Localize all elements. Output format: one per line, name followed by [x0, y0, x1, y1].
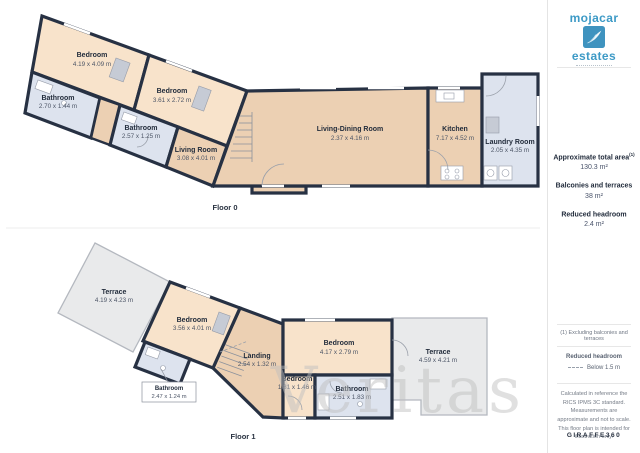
room-label: Bathroom — [41, 95, 74, 102]
divider — [557, 383, 631, 384]
room-dims: 4.19 x 4.09 m — [73, 61, 111, 68]
divider — [557, 67, 631, 68]
room-label: Bathroom — [124, 125, 157, 132]
divider — [557, 324, 631, 325]
area-footnote: (1) Excluding balconies and terraces — [552, 330, 636, 342]
room-label: Bedroom — [157, 88, 188, 95]
area-stats: Approximate total area(1) 130.3 m² Balco… — [548, 152, 640, 237]
room-label: Bedroom — [324, 340, 355, 347]
room-label: Kitchen — [442, 126, 468, 133]
room-label: Terrace — [102, 289, 127, 296]
room-dims: 2.05 x 4.35 m — [491, 147, 529, 154]
dashed-line-sample — [568, 367, 583, 368]
stat-total-area: Approximate total area(1) 130.3 m² — [548, 152, 640, 171]
room-label: Landing — [243, 353, 270, 360]
giraffe360-logo: GIRAFFE360 — [548, 432, 640, 439]
room-label: Living-Dining Room — [317, 126, 384, 133]
room-dims: 3.08 x 4.01 m — [177, 155, 215, 162]
stat-value: 2.4 m² — [548, 221, 640, 228]
floor-1-label: Floor 1 — [230, 432, 255, 441]
divider — [557, 346, 631, 347]
room-label: Living Room — [175, 147, 217, 154]
room-label: Laundry Room — [485, 139, 534, 146]
room-dims: 3.61 x 2.72 m — [153, 97, 191, 104]
floor-0-plan: Bedroom 4.19 x 4.09 m Bathroom 2.70 x 1.… — [25, 16, 538, 212]
room-dims: 2.47 x 1.24 m — [151, 394, 186, 400]
watermark: Veritas — [270, 354, 525, 428]
agency-name-bottom: estates — [548, 50, 640, 62]
info-panel: mojacar estates Approximate total area(1… — [547, 0, 640, 453]
stat-value: 38 m² — [548, 193, 640, 200]
floor-0-label: Floor 0 — [212, 203, 237, 212]
room-label: Bedroom — [77, 52, 108, 59]
agency-name-top: mojacar — [548, 12, 640, 24]
room-dims: 2.57 x 1.25 m — [122, 133, 160, 140]
stat-label: Balconies and terraces — [556, 183, 633, 190]
room-label: Bedroom — [177, 317, 208, 324]
floorplan-page: Bedroom 4.19 x 4.09 m Bathroom 2.70 x 1.… — [0, 0, 640, 453]
legend-label: Below 1.5 m — [587, 365, 620, 371]
stat-reduced-headroom: Reduced headroom 2.4 m² — [548, 209, 640, 228]
stat-footnote-marker: (1) — [629, 152, 635, 157]
stove-icon — [441, 166, 463, 180]
kitchen-sink-icon — [444, 93, 454, 99]
room-dims: 7.17 x 4.52 m — [436, 135, 474, 142]
floorplan-canvas: Bedroom 4.19 x 4.09 m Bathroom 2.70 x 1.… — [0, 0, 640, 453]
agency-wave-icon — [583, 26, 605, 48]
stat-value: 130.3 m² — [548, 164, 640, 171]
agency-logo: mojacar estates — [548, 12, 640, 68]
room-dims: 2.70 x 1.44 m — [39, 103, 77, 110]
reduced-headroom-legend: Reduced headroom Below 1.5 m — [548, 354, 640, 371]
stat-label: Approximate total area — [553, 154, 629, 161]
laundry-shelf-icon — [486, 117, 499, 133]
stat-balconies: Balconies and terraces 38 m² — [548, 180, 640, 199]
room-dims: 3.56 x 4.01 m — [173, 325, 211, 332]
stat-label: Reduced headroom — [561, 211, 626, 218]
room-dims: 2.37 x 4.16 m — [331, 135, 369, 142]
room-label: Bathroom — [155, 386, 183, 392]
legend-title: Reduced headroom — [548, 354, 640, 360]
room-dims: 4.19 x 4.23 m — [95, 297, 133, 304]
